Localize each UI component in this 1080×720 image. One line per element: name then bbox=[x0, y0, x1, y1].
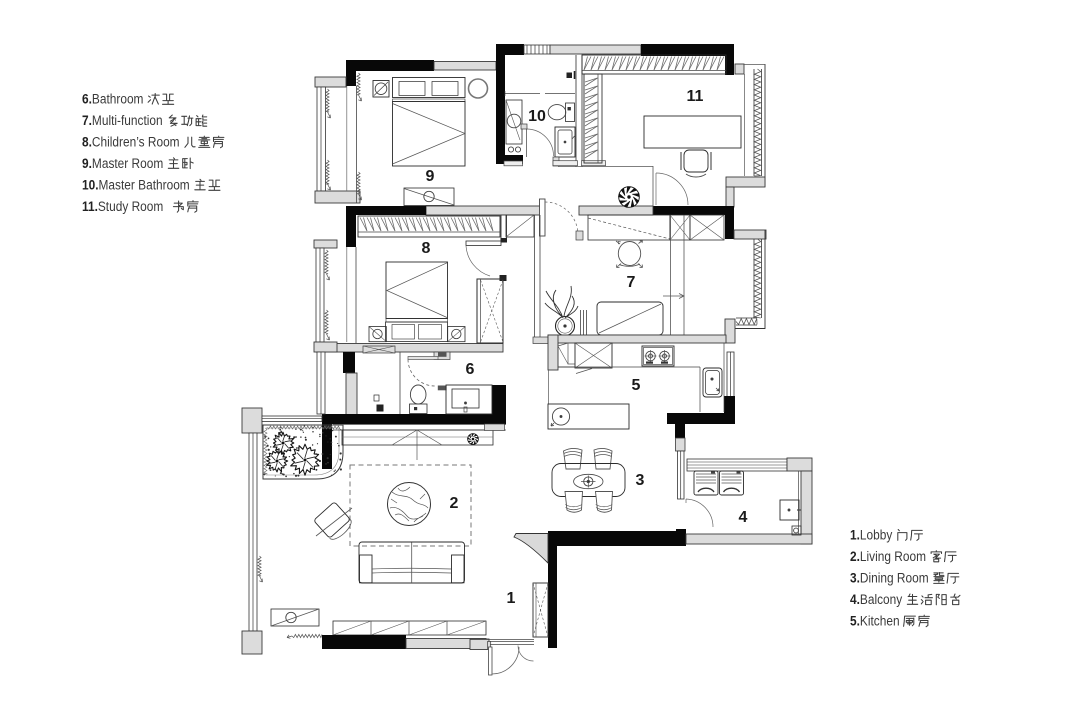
svg-text:3.Dining Room: 3.Dining Room bbox=[850, 570, 929, 586]
svg-text:3: 3 bbox=[636, 472, 645, 489]
svg-text:6: 6 bbox=[466, 361, 475, 378]
svg-text:4: 4 bbox=[739, 509, 748, 526]
svg-text:1.Lobby: 1.Lobby bbox=[850, 527, 893, 543]
svg-text:9: 9 bbox=[426, 168, 435, 185]
svg-text:1: 1 bbox=[507, 590, 516, 607]
svg-text:8: 8 bbox=[422, 240, 431, 257]
svg-text:5.Kitchen: 5.Kitchen bbox=[850, 613, 900, 629]
svg-text:7: 7 bbox=[627, 274, 636, 291]
svg-text:10.Master Bathroom: 10.Master Bathroom bbox=[82, 177, 190, 193]
svg-text:2.Living Room: 2.Living Room bbox=[850, 548, 926, 564]
svg-text:10: 10 bbox=[528, 108, 546, 125]
svg-text:11.Study Room: 11.Study Room bbox=[82, 198, 163, 214]
svg-text:9.Master Room: 9.Master Room bbox=[82, 155, 163, 171]
svg-text:7.Multi-function: 7.Multi-function bbox=[82, 112, 163, 128]
svg-text:6.Bathroom: 6.Bathroom bbox=[82, 91, 143, 107]
svg-text:4.Balcony: 4.Balcony bbox=[850, 591, 903, 607]
svg-text:2: 2 bbox=[450, 495, 459, 512]
svg-text:11: 11 bbox=[687, 88, 704, 105]
svg-text:5: 5 bbox=[632, 377, 641, 394]
svg-text:8.Children’s Room: 8.Children’s Room bbox=[82, 134, 180, 150]
